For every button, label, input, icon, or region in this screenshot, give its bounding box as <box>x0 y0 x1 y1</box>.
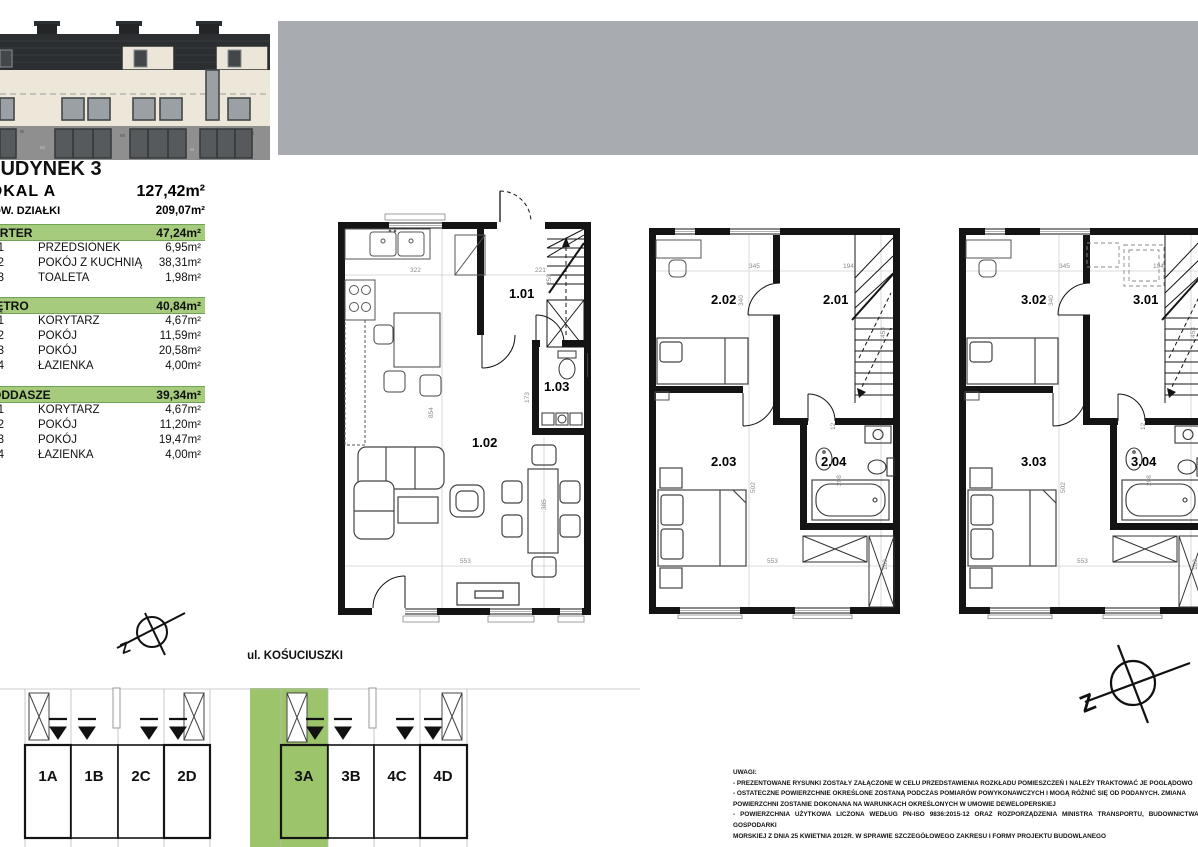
unit-cell-3b[interactable] <box>328 745 374 838</box>
table-row: 1.03TOALETA1,98m² <box>0 272 205 287</box>
section-header-parter: PARTER 47,24m² <box>0 224 205 241</box>
svg-text:345: 345 <box>749 263 760 270</box>
unit-cell-3a[interactable] <box>281 745 328 838</box>
notes-line: GOSPODARKI <box>733 821 1198 832</box>
svg-text:208: 208 <box>836 475 843 486</box>
svg-text:385: 385 <box>541 499 548 510</box>
svg-text:173: 173 <box>524 392 531 403</box>
room-label-1-03: 1.03 <box>544 379 569 394</box>
notes-line: POWIERZCHNI ZOSTANIE DOKONANA NA WARUNKA… <box>733 800 1198 811</box>
room-label-2-04: 2.04 <box>821 454 847 469</box>
unit-label-1a: 1A <box>38 768 57 785</box>
table-row: 1.01PRZEDSIONEK6,95m² <box>0 242 205 257</box>
north-letter: Z <box>1076 688 1100 719</box>
plan-walls <box>338 222 591 615</box>
table-row: 3.03POKÓJ19,47m² <box>0 434 205 449</box>
table-row: 1.02POKÓJ Z KUCHNIĄ38,31m² <box>0 257 205 272</box>
room-label-2-02: 2.02 <box>711 292 736 307</box>
plot-label: POW. DZIAŁKI <box>0 205 60 217</box>
svg-text:453: 453 <box>880 327 887 338</box>
notes-title: UWAGI: <box>733 768 1198 779</box>
unit-label-4d: 4D <box>433 768 452 785</box>
plot-area: 209,07m² <box>156 205 205 217</box>
site-plan: 1A 1B 2C 2D 3A 3B 4C 4D <box>0 640 640 847</box>
svg-text:250: 250 <box>546 274 553 285</box>
svg-text:854: 854 <box>428 407 435 418</box>
svg-text:12: 12 <box>1140 422 1147 430</box>
notes-line: MORSKIEJ Z DNIA 25 KWIETNIA 2012R. W SPR… <box>733 832 1198 843</box>
table-row: 2.04ŁAZIENKA4,00m² <box>0 360 205 375</box>
building-2-units <box>281 745 467 838</box>
unit-cell-2d[interactable] <box>164 745 210 838</box>
section-header-poddasze: PODDASZE 39,34m² <box>0 386 205 403</box>
svg-text:553: 553 <box>460 558 471 565</box>
entry-door <box>500 191 531 222</box>
table-row: 3.02POKÓJ11,20m² <box>0 419 205 434</box>
floor-plan-parter: 1.01 1.02 1.03 322 221 250 854 553 385 1… <box>332 185 597 630</box>
north-arrow-icon-large: Z <box>1070 638 1198 733</box>
room-label-3-02: 3.02 <box>1021 292 1046 307</box>
room-label-2-03: 2.03 <box>711 454 736 469</box>
table-row: 3.01KORYTARZ4,67m² <box>0 404 205 419</box>
notes-line: - POWIERZCHNIA UŻYTKOWA LICZONA WEDŁUG P… <box>733 810 1198 821</box>
unit-label-3a: 3A <box>294 768 313 785</box>
room-label-1-02: 1.02 <box>472 435 497 450</box>
svg-text:169: 169 <box>882 559 889 570</box>
notes-line: - OSTATECZNE POWIERZCHNIE OKREŚLONE ZOST… <box>733 789 1198 800</box>
table-row: 2.03POKÓJ20,58m² <box>0 345 205 360</box>
room-label-1-01: 1.01 <box>509 286 534 301</box>
svg-text:322: 322 <box>410 267 421 274</box>
section-header-pietro: PIĘTRO 40,84m² <box>0 297 205 314</box>
table-row: 2.02POKÓJ11,59m² <box>0 330 205 345</box>
unit-label-3b: 3B <box>341 768 360 785</box>
svg-text:345: 345 <box>1059 263 1070 270</box>
section-rows-parter: 1.01PRZEDSIONEK6,95m² 1.02POKÓJ Z KUCHNI… <box>0 242 205 287</box>
svg-text:208: 208 <box>1146 475 1153 486</box>
unit-cell-2c[interactable] <box>118 745 164 838</box>
section-rows-poddasze: 3.01KORYTARZ4,67m² 3.02POKÓJ11,20m² 3.03… <box>0 404 205 464</box>
notes-line: - PREZENTOWANE RYSUNKI ZOSTAŁY ZAŁĄCZONE… <box>733 779 1198 790</box>
floor-plan-poddasze: 3.02 3.01 3.03 3.04 345 194 340 453 502 … <box>955 218 1198 618</box>
svg-text:194: 194 <box>1153 263 1164 270</box>
svg-text:194: 194 <box>843 263 854 270</box>
unit-cell-4c[interactable] <box>374 745 420 838</box>
unit-cell-1a[interactable] <box>25 745 71 838</box>
svg-text:553: 553 <box>767 558 778 565</box>
room-label-3-01: 3.01 <box>1133 292 1158 307</box>
gray-banner <box>278 21 1198 155</box>
unit-label-4c: 4C <box>387 768 406 785</box>
plan-windows <box>389 223 590 614</box>
floor-plan-pietro: 2.02 2.01 2.03 2.04 345 194 340 453 502 … <box>645 218 905 618</box>
table-row: 3.04ŁAZIENKA4,00m² <box>0 449 205 464</box>
dormer-boxes <box>29 688 462 742</box>
unit-cell-4d[interactable] <box>420 745 467 838</box>
unit-area: 127,42m² <box>137 183 206 201</box>
svg-text:453: 453 <box>1190 327 1197 338</box>
table-row: 2.01KORYTARZ4,67m² <box>0 315 205 330</box>
building-title: BUDYNEK 3 <box>0 158 102 181</box>
svg-text:340: 340 <box>1048 295 1055 306</box>
unit-cell-1b[interactable] <box>71 745 118 838</box>
svg-text:553: 553 <box>1077 558 1088 565</box>
svg-text:221: 221 <box>535 267 546 274</box>
svg-text:502: 502 <box>750 482 757 493</box>
room-label-3-04: 3.04 <box>1131 454 1157 469</box>
room-label-2-01: 2.01 <box>823 292 848 307</box>
unit-label: LOKAL A <box>0 183 56 200</box>
entrance-markers <box>49 719 442 739</box>
unit-label-2d: 2D <box>177 768 196 785</box>
svg-text:169: 169 <box>1192 559 1198 570</box>
plot-row: POW. DZIAŁKI 209,07m² <box>0 205 205 217</box>
building-1-units <box>25 745 210 838</box>
section-rows-pietro: 2.01KORYTARZ4,67m² 2.02POKÓJ11,59m² 2.03… <box>0 315 205 375</box>
svg-text:340: 340 <box>738 295 745 306</box>
svg-text:502: 502 <box>1060 482 1067 493</box>
room-label-3-03: 3.03 <box>1021 454 1046 469</box>
kitchen-furniture <box>345 229 485 445</box>
unit-label-2c: 2C <box>131 768 150 785</box>
unit-label-1b: 1B <box>84 768 103 785</box>
svg-text:12: 12 <box>830 422 837 430</box>
unit-row: LOKAL A 127,42m² <box>0 183 205 201</box>
legal-notes: UWAGI: - PREZENTOWANE RYSUNKI ZOSTAŁY ZA… <box>733 768 1198 842</box>
building-elevation-image <box>0 8 282 158</box>
